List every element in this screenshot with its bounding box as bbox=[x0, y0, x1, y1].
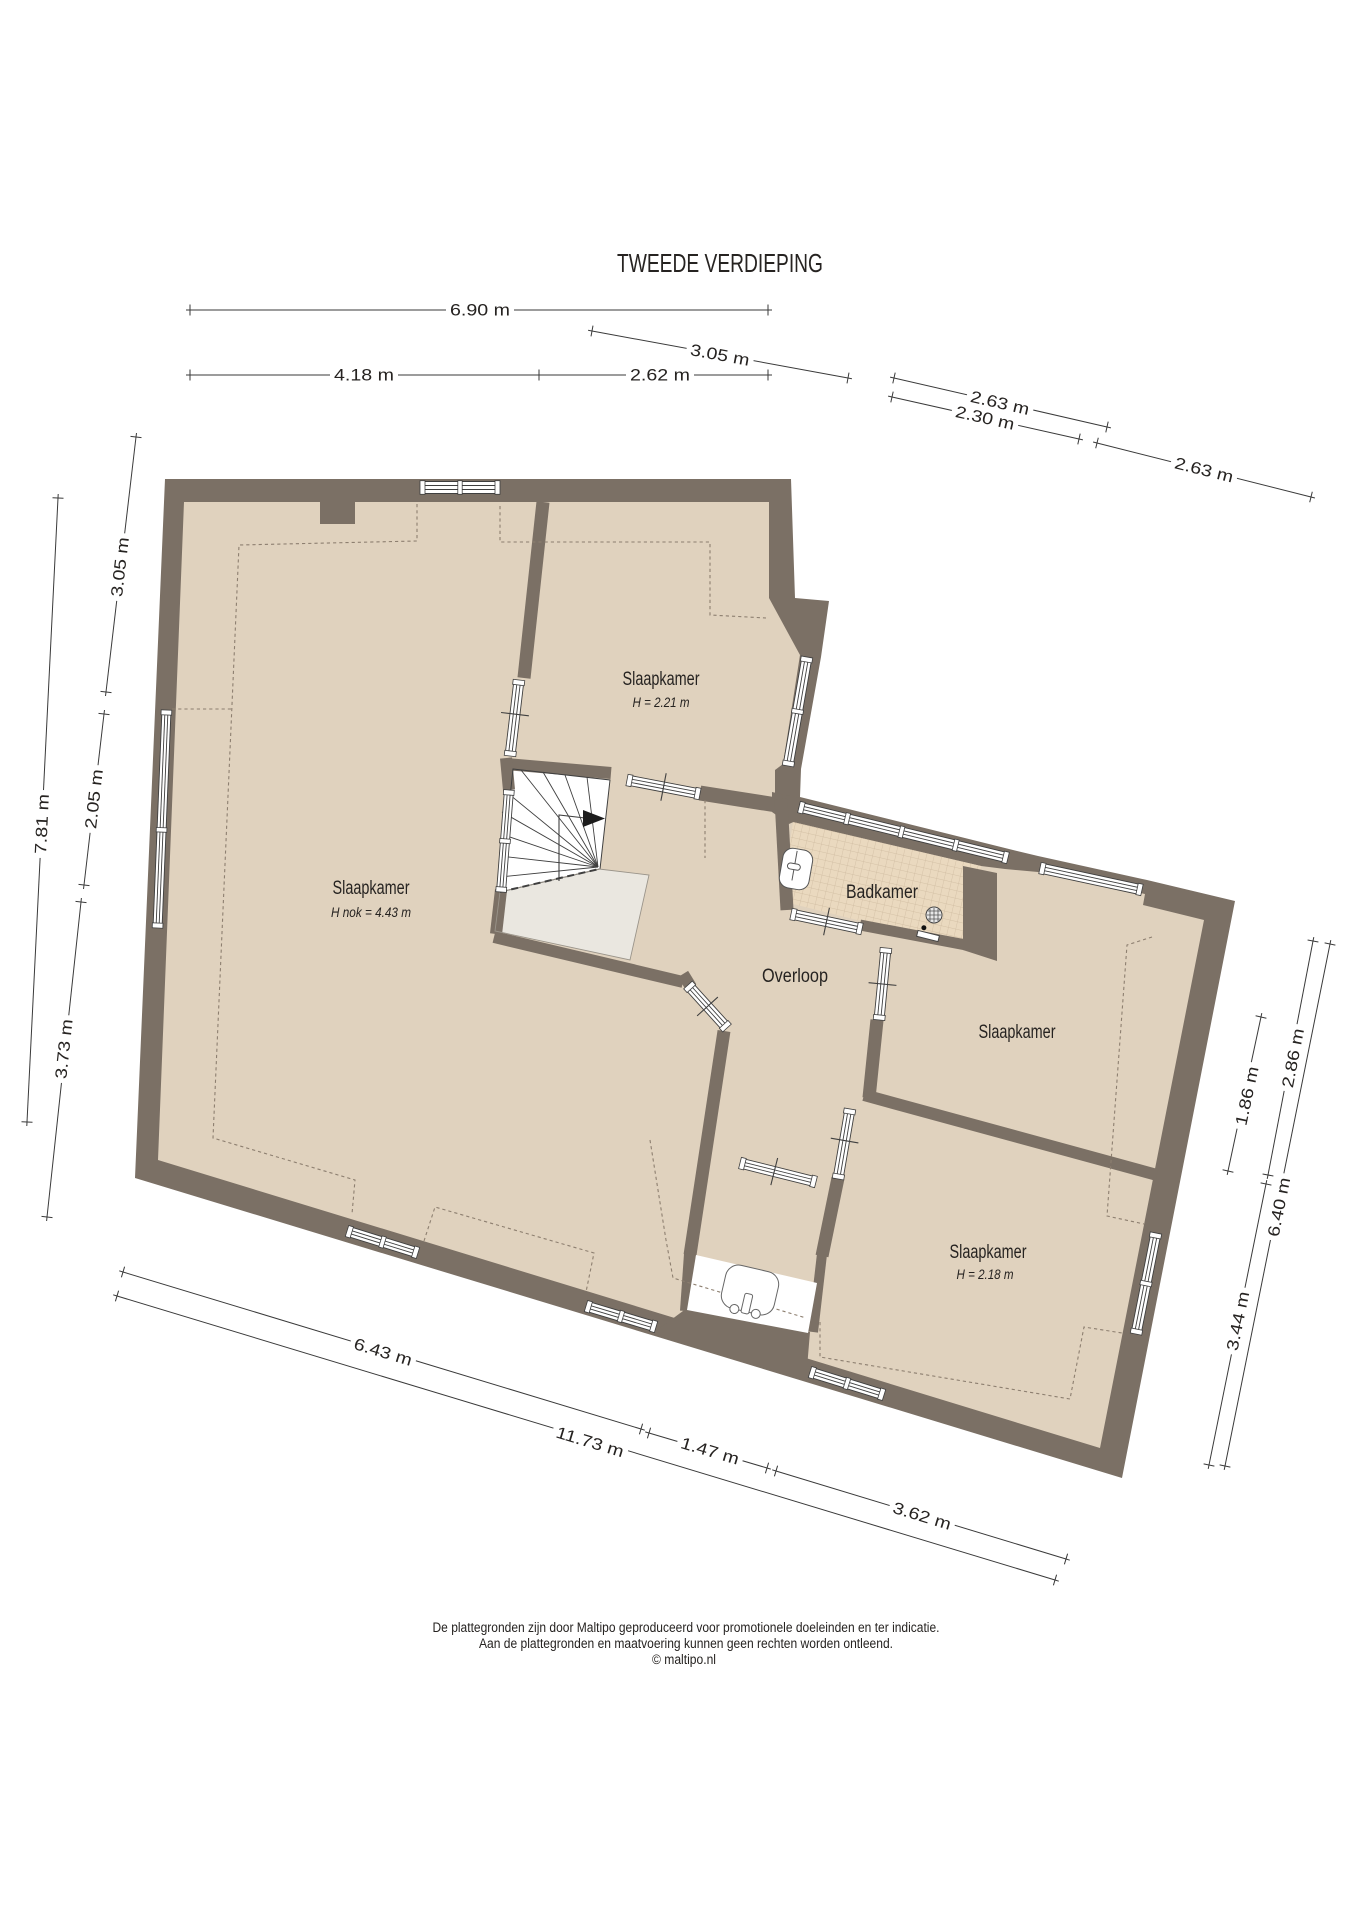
svg-text:4.18 m: 4.18 m bbox=[334, 367, 394, 385]
svg-text:6.90 m: 6.90 m bbox=[450, 302, 510, 320]
svg-text:Badkamer: Badkamer bbox=[846, 882, 919, 903]
svg-text:H nok = 4.43 m: H nok = 4.43 m bbox=[331, 905, 411, 920]
svg-text:H = 2.18 m: H = 2.18 m bbox=[957, 1267, 1014, 1282]
svg-text:Slaapkamer: Slaapkamer bbox=[979, 1022, 1057, 1043]
svg-text:Aan de plattegronden en maatvo: Aan de plattegronden en maatvoering kunn… bbox=[479, 1636, 893, 1651]
svg-text:Slaapkamer: Slaapkamer bbox=[623, 669, 701, 690]
svg-text:H = 2.21 m: H = 2.21 m bbox=[633, 695, 690, 710]
svg-text:Overloop: Overloop bbox=[762, 966, 828, 987]
svg-text:TWEEDE VERDIEPING: TWEEDE VERDIEPING bbox=[617, 248, 823, 278]
svg-text:De plattegronden zijn door Mal: De plattegronden zijn door Maltipo gepro… bbox=[433, 1620, 940, 1635]
svg-text:Slaapkamer: Slaapkamer bbox=[333, 878, 411, 899]
svg-text:Slaapkamer: Slaapkamer bbox=[950, 1242, 1028, 1263]
svg-text:© maltipo.nl: © maltipo.nl bbox=[652, 1652, 716, 1667]
svg-text:2.62 m: 2.62 m bbox=[630, 367, 690, 385]
svg-text:7.81 m: 7.81 m bbox=[32, 794, 53, 855]
